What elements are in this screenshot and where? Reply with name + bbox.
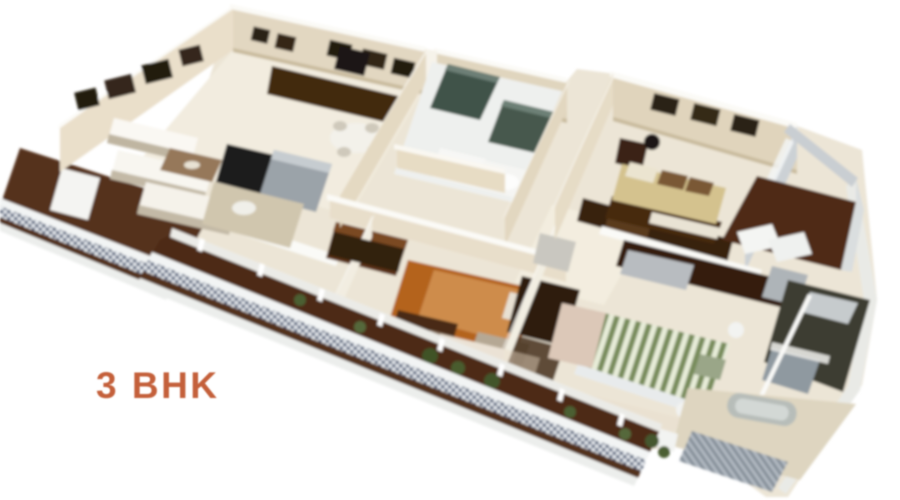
svg-text:3 BHK: 3 BHK (96, 365, 220, 406)
